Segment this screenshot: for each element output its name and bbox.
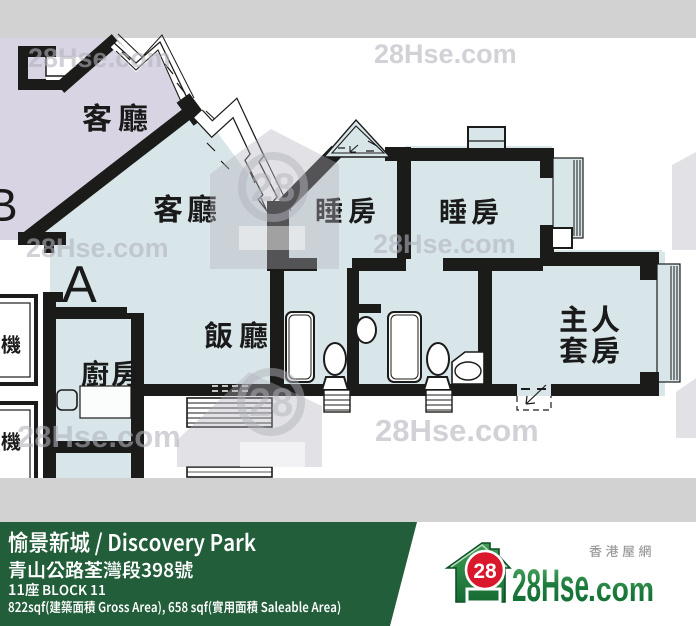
svg-text:28: 28 <box>251 166 296 210</box>
svg-text:28Hse.com: 28Hse.com <box>374 39 517 69</box>
svg-text:28: 28 <box>249 381 294 425</box>
svg-text:28Hse.com: 28Hse.com <box>26 233 169 263</box>
svg-text:A: A <box>62 256 97 314</box>
svg-text:B: B <box>0 179 18 231</box>
svg-text:28Hse.com: 28Hse.com <box>375 413 539 448</box>
svg-text:28Hse.com: 28Hse.com <box>373 229 516 259</box>
svg-text:.com: .com <box>588 571 654 609</box>
svg-text:28Hse.com: 28Hse.com <box>28 43 171 73</box>
svg-text:28Hse: 28Hse <box>512 560 589 611</box>
svg-text:28: 28 <box>473 560 497 583</box>
svg-text:28Hse.com: 28Hse.com <box>17 419 181 454</box>
